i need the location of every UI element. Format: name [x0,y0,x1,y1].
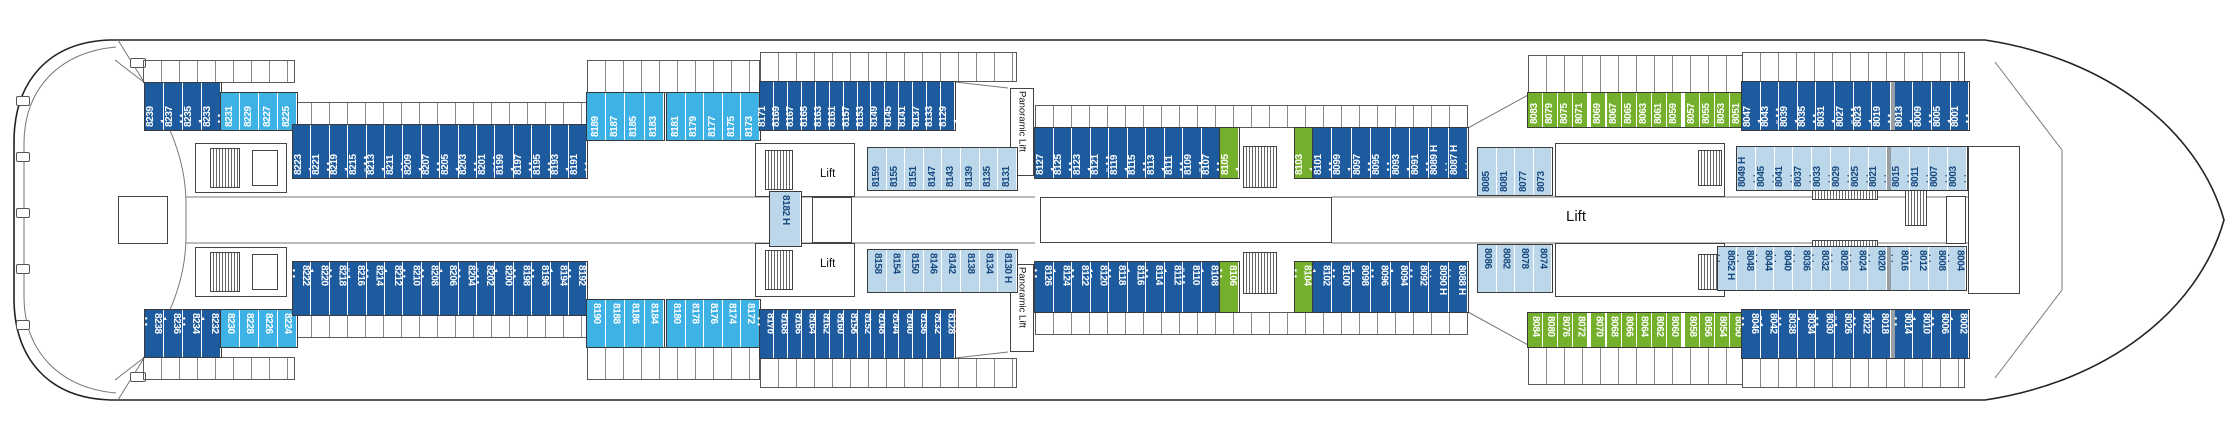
balcony-band [587,60,760,93]
cabin-number: 8058 [1687,316,1698,337]
cabin-8110[interactable]: 8110I●● [1183,262,1201,312]
cabin-8233[interactable]: 8233●● [202,83,220,130]
cabin-8154[interactable]: 8154 [887,250,905,292]
cabin-8025[interactable]: 8025▪▪ [1850,147,1868,190]
cabin-8097[interactable]: 8097●● [1352,128,1370,178]
cabin-number: 8049 H [1737,157,1748,187]
cabin-number: 8191 [569,154,580,175]
cabin-number: 8181 [670,116,681,137]
cabin-8081[interactable]: 8081 [1497,148,1515,195]
cabin-8069[interactable]: 8069 [1591,93,1605,127]
cabin-8204[interactable]: 8204●● [459,262,476,315]
cabin-8099[interactable]: 8099▲ [1332,128,1350,178]
cabin-8200[interactable]: 8200▲ [495,262,512,315]
cabin-8207[interactable]: 8207●● [422,125,439,178]
cabin-number: 8190 [591,303,602,324]
cabin-feature-icon: ▲ [383,268,389,315]
cabin-8202[interactable]: 8202I●● [477,262,494,315]
cabin-8028[interactable]: 8028▪▪ [1831,247,1849,290]
cabin-8178[interactable]: 8178 [686,300,704,347]
cabin-8096[interactable]: 8096●● [1371,262,1389,312]
cabin-8223[interactable]: 8223▲ [293,125,310,178]
cabin-8159[interactable]: 8159 [868,148,886,190]
cabin-number: 8169 [771,106,782,127]
cabin-8108[interactable]: 8108▲ [1202,262,1220,312]
cabin-8215[interactable]: 8215I●● [348,125,365,178]
cabin-8197[interactable]: 8197●● [514,125,531,178]
cabin-8193[interactable]: 8193▲ [551,125,568,178]
cabin-8103[interactable]: 8103▲ [1295,128,1312,178]
cabin-8062[interactable]: 8062 [1652,313,1666,347]
cabin-8226[interactable]: 8226 [259,310,277,347]
cabin-8119[interactable]: 8119▲ [1109,128,1127,178]
cabin-number: 8186 [629,303,640,324]
cabin-feature-icon: ●● [456,268,462,315]
cabin-8027[interactable]: 8027I●● [1835,82,1853,130]
deck-plan: Lift Lift Lift Panoramic Lift Panoramic … [0,0,2230,440]
cabin-number: 8004 [1955,250,1966,271]
cabin-8180[interactable]: 8180 [667,300,685,347]
cabin-8085[interactable]: 8085 [1478,148,1496,195]
cabin-8205[interactable]: 8205▲ [440,125,457,178]
cabin-number: 8070 [1593,316,1604,337]
cabin-8201[interactable]: 8201I●● [477,125,494,178]
cabin-8109[interactable]: 8109I▲ [1183,128,1201,178]
cabin-8009[interactable]: 8009●● [1913,82,1931,130]
cabin-8118[interactable]: 8118●● [1109,262,1127,312]
cabin-8227[interactable]: 8227 [259,93,277,130]
cabin-8054[interactable]: 8054 [1715,313,1729,347]
cabin-8088[interactable]: 8088 H▪▪ [1449,262,1467,312]
cabin-feature-icon: ●● [419,268,425,315]
cabin-8074[interactable]: 8074 [1534,245,1552,292]
cabin-8064[interactable]: 8064 [1637,313,1651,347]
cabin-8235[interactable]: 8235▲ [183,83,201,130]
cabin-8024[interactable]: 8024▪▪ [1850,247,1868,290]
cabin-feature-icon: ●● [1107,268,1113,312]
cabin-8228[interactable]: 8228 [240,310,258,347]
cabin-8042[interactable]: 8042I▲ [1761,310,1779,358]
cabin-feature-icon: ●● [530,268,536,315]
cabin-8073[interactable]: 8073 [1534,148,1552,195]
cabin-number: 8230 [225,313,236,334]
cabin-8034[interactable]: 8034▲ [1798,310,1816,358]
cabin-8058[interactable]: 8058 [1685,313,1699,347]
cabin-8192[interactable]: 8192●● [569,262,586,315]
cabin-8041[interactable]: 8041▪▪ [1775,147,1793,190]
cabin-8146[interactable]: 8146 [924,250,942,292]
cabin-number: 8128 [946,313,957,334]
stairs-icon [765,150,793,190]
cabin-8239[interactable]: 8239▲ [145,83,163,130]
cabin-8016[interactable]: 8016▪▪ [1891,247,1909,290]
cabin-number: 8145 [883,106,894,127]
cabin-number: 8131 [1001,166,1012,187]
cabin-8029[interactable]: 8029▪▪ [1831,147,1849,190]
cabin-8236[interactable]: 8236▲ [164,310,182,357]
cabin-number: 8119 [1109,155,1120,175]
cabin-8139[interactable]: 8139 [961,148,979,190]
cabin-8037[interactable]: 8037▪▪ [1793,147,1811,190]
cabin-8020[interactable]: 8020▪▪ [1868,247,1886,290]
cabin-number: 8087 H [1449,145,1460,175]
cabin-8012[interactable]: 8012▪▪ [1910,247,1928,290]
lift-shaft [252,150,278,186]
cabin-8053[interactable]: 8053 [1715,93,1729,127]
cabin-8013[interactable]: 8013▲ [1895,82,1913,130]
cabin-feature-icon: ▪▪ [1908,253,1914,290]
cabin-8092[interactable]: 8092●● [1410,262,1428,312]
cabin-8106[interactable]: 8106●● [1220,262,1238,312]
cabin-8026[interactable]: 8026I▲ [1835,310,1853,358]
balcony-band [293,102,587,125]
cabin-8105[interactable]: 8105▲ [1220,128,1238,178]
cabin-8115[interactable]: 8115●● [1128,128,1146,178]
cabin-8112[interactable]: 8112▲ [1165,262,1183,312]
cabin-8090[interactable]: 8090 H▪▪ [1429,262,1447,312]
cabin-number: 8161 [827,106,838,127]
cabin-8210[interactable]: 8210●● [403,262,420,315]
cabin-8196[interactable]: 8196●● [532,262,549,315]
cabin-8142[interactable]: 8142 [942,250,960,292]
cabin-8063[interactable]: 8063 [1637,93,1651,127]
cabin-8126[interactable]: 8126●● [1035,262,1053,312]
cabin-number: 8159 [871,166,882,187]
cabin-8082[interactable]: 8082 [1497,245,1515,292]
cabin-8070[interactable]: 8070 [1591,313,1605,347]
cabin-8230[interactable]: 8230 [221,310,239,347]
cabin-8094[interactable]: 8094▲ [1391,262,1409,312]
cabin-number: 8095 [1371,154,1382,175]
cabin-8206[interactable]: 8206▲ [440,262,457,315]
cabin-8086[interactable]: 8086 [1478,245,1496,292]
cabin-8179[interactable]: 8179 [686,93,704,140]
cabin-8059[interactable]: 8059 [1667,93,1681,127]
cabin-8093[interactable]: 8093▲ [1391,128,1409,178]
cabin-8186[interactable]: 8186 [625,300,643,347]
cabin-number: 8064 [1639,316,1650,337]
cabin-feature-icon: ▲ [1234,128,1240,172]
cabin-feature-icon: ▲ [895,316,901,358]
cabin-8123[interactable]: 8123▲ [1072,128,1090,178]
cabin-8080[interactable]: 8080 [1543,313,1557,347]
cabin-8177[interactable]: 8177 [704,93,722,140]
cabin-number: 8097 [1352,154,1363,175]
cabin-8100[interactable]: 8100●● [1332,262,1350,312]
cabin-feature-icon: ▲ [1199,268,1205,312]
cabin-8083[interactable]: 8083 [1528,93,1542,127]
cabin-8195[interactable]: 8195●● [532,125,549,178]
cabin-8147[interactable]: 8147 [924,148,942,190]
cabin-8014[interactable]: 8014●● [1895,310,1913,358]
cabin-number: 8137 [911,106,922,127]
cabin-number: 8002 [1958,313,1969,334]
cabin-8040[interactable]: 8040▪▪ [1774,247,1792,290]
cabin-number: 8146 [928,253,939,274]
cabin-number: 8007 [1929,166,1940,187]
cabin-8055[interactable]: 8055 [1700,93,1714,127]
cabin-8181[interactable]: 8181 [667,93,685,140]
cabin-feature-icon: ●● [1814,316,1820,358]
cabin-8023[interactable]: 8023▲ [1854,82,1872,130]
cabin-number: 8055 [1701,103,1712,124]
cabin-8185[interactable]: 8185 [625,93,643,140]
cabin-8135[interactable]: 8135 [980,148,998,190]
cabin-8194[interactable]: 8194▲ [551,262,568,315]
cabin-number: 8205 [440,154,451,175]
cabin-8075[interactable]: 8075 [1558,93,1572,127]
cabin-number: 8089 H [1429,145,1440,175]
cabin-8121[interactable]: 8121I●● [1091,128,1109,178]
cabin-8218[interactable]: 8218●● [330,262,347,315]
cabin-number: 8215 [348,154,359,175]
cabin-8078[interactable]: 8078 [1515,245,1533,292]
cabin-8007[interactable]: 8007▪▪ [1929,147,1947,190]
cabin-8019[interactable]: 8019●● [1872,82,1890,130]
cabin-8222[interactable]: 8222●● [293,262,310,315]
cabin-8143[interactable]: 8143 [942,148,960,190]
cabin-number: 8047 [1742,106,1753,127]
cabin-8155[interactable]: 8155 [887,148,905,190]
balcony-band [143,357,295,380]
cabin-number: 8081 [1499,171,1510,192]
cabin-feature-icon: ●● [364,268,370,315]
cabin-8079[interactable]: 8079 [1543,93,1557,127]
cabin-8091[interactable]: 8091●● [1410,128,1428,178]
cabin-feature-icon: ▲ [200,316,206,357]
cabin-8184[interactable]: 8184 [645,300,663,347]
cabin-feature-icon: I▲ [346,268,352,315]
cabin-8114[interactable]: 8114●● [1146,262,1164,312]
cabin-8134[interactable]: 8134 [980,250,998,292]
cabin-8056[interactable]: 8056 [1700,313,1714,347]
cabin-8038[interactable]: 8038●● [1779,310,1797,358]
cabin-feature-icon: ▲ [438,268,444,315]
cabin-8238[interactable]: 8238●● [145,310,163,357]
cabin-feature-icon: ▲ [1051,268,1057,312]
cabin-8104[interactable]: 8104●● [1295,262,1312,312]
cabin-8018[interactable]: 8018▲ [1872,310,1890,358]
cabin-8122[interactable]: 8122●● [1072,262,1090,312]
cabin-8127[interactable]: 8127▲ [1035,128,1053,178]
cabin-8187[interactable]: 8187 [606,93,624,140]
cabin-feature-icon: ●● [1930,316,1936,358]
cabin-8232[interactable]: 8232▲ [202,310,220,357]
cabin-number: 8135 [982,166,993,187]
cabin-8077[interactable]: 8077 [1515,148,1533,195]
cabin-8131[interactable]: 8131 [998,148,1016,190]
cabin-8189[interactable]: 8189 [587,93,605,140]
cabin-8068[interactable]: 8068 [1607,313,1621,347]
cabin-number: 8239 [145,106,156,127]
cabin-number: 8073 [1536,171,1547,192]
balcony-band [143,60,295,83]
cabin-8089[interactable]: 8089 H▪▪ [1429,128,1447,178]
cabin-feature-icon: ▲ [162,316,168,357]
cabin-number: 8134 [983,253,994,274]
cabin-number: 8080 [1545,316,1556,337]
cabin-8183[interactable]: 8183 [645,93,663,140]
cabin-8188[interactable]: 8188 [606,300,624,347]
cabin-number: 8163 [813,106,824,127]
cabin-8125[interactable]: 8125●● [1054,128,1072,178]
cabin-8213[interactable]: 8213▲ [367,125,384,178]
cabin-number: 8071 [1574,103,1585,124]
cabin-8120[interactable]: 8120▲I [1091,262,1109,312]
stern-window [16,152,30,162]
cabin-8043[interactable]: 8043I●● [1761,82,1779,130]
cabin-8101[interactable]: 8101●● [1313,128,1331,178]
cabin-8036[interactable]: 8036▪▪ [1793,247,1811,290]
cabin-8220[interactable]: 8220▲ [311,262,328,315]
cabin-8111[interactable]: 8111●● [1165,128,1183,178]
cabin-8129[interactable]: 8129▲ [941,82,954,130]
cabin-8182[interactable]: 8182 H [770,192,800,246]
cabin-8234[interactable]: 8234●● [183,310,201,357]
cabin-8116[interactable]: 8116▲ [1128,262,1146,312]
cabin-8212[interactable]: 8212▲ [385,262,402,315]
cabin-number: 8025 [1850,166,1861,187]
cabin-feature-icon: ▪▪ [1716,253,1722,290]
cabin-8001[interactable]: 8001●● [1951,82,1969,130]
cabin-8030[interactable]: 8030●● [1816,310,1834,358]
cabin-8208[interactable]: 8208●● [422,262,439,315]
cabin-8214[interactable]: 8214●● [367,262,384,315]
cabin-8011[interactable]: 8011▪▪ [1910,147,1928,190]
cabin-8015[interactable]: 8015▪▪ [1891,147,1909,190]
cabin-feature-icon: ▪▪ [1945,253,1951,290]
cabin-8006[interactable]: 8006●● [1932,310,1950,358]
cabin-number: 8185 [628,116,639,137]
cabin-8150[interactable]: 8150 [905,250,923,292]
cabin-8031[interactable]: 8031▲ [1816,82,1834,130]
cabin-8107[interactable]: 8107●● [1202,128,1220,178]
stern-window [16,208,30,218]
cabin-8176[interactable]: 8176 [704,300,722,347]
cabin-feature-icon: I▲ [1833,316,1839,358]
cabin-8033[interactable]: 8033▪▪ [1812,147,1830,190]
cabin-8138[interactable]: 8138 [961,250,979,292]
cabin-number: 8029 [1831,166,1842,187]
cabin-8035[interactable]: 8035●● [1798,82,1816,130]
cabin-8124[interactable]: 8124▲ [1054,262,1072,312]
cabin-8128[interactable]: 8128▲ [941,310,954,358]
cabin-8151[interactable]: 8151 [905,148,923,190]
cabin-8072[interactable]: 8072 [1573,313,1587,347]
cabin-8095[interactable]: 8095●● [1371,128,1389,178]
balcony-band [760,52,1017,82]
cabin-number: 8231 [224,106,235,127]
cabin-8045[interactable]: 8045▪▪ [1756,147,1774,190]
cabin-8008[interactable]: 8008▪▪ [1929,247,1947,290]
cabin-number: 8207 [421,154,432,175]
cabin-feature-icon: ●● [1964,82,1970,124]
cabin-8044[interactable]: 8044▪▪ [1756,247,1774,290]
cabin-8046[interactable]: 8046●● [1742,310,1760,358]
cabin-8002[interactable]: 8002▲ [1951,310,1969,358]
cabin-8113[interactable]: 8113▲ [1146,128,1164,178]
cabin-8237[interactable]: 8237●● [164,83,182,130]
cabin-feature-icon: ●● [1070,268,1076,312]
cabin-feature-icon: ▪▪ [1427,268,1433,312]
cabin-8190[interactable]: 8190 [587,300,605,347]
cabin-8076[interactable]: 8076 [1558,313,1572,347]
cabin-number: 8005 [1932,106,1943,127]
cabin-number: 8125 [1053,154,1064,175]
cabin-number: 8076 [1560,316,1571,337]
cabin-8174[interactable]: 8174 [723,300,741,347]
cabin-8231[interactable]: 8231 [221,93,239,130]
cabin-number: 8171 [757,106,768,127]
cabin-number: 8018 [1879,313,1890,334]
cabin-8084[interactable]: 8084 [1528,313,1542,347]
balcony-band [760,358,1017,388]
cabin-8010[interactable]: 8010▲ [1913,310,1931,358]
cabin-feature-icon: ▪▪ [1791,253,1797,290]
cabin-8032[interactable]: 8032▪▪ [1812,247,1830,290]
cabin-8216[interactable]: 8216I▲ [348,262,365,315]
cabin-number: 8023 [1853,106,1864,127]
cabin-8211[interactable]: 8211●● [385,125,402,178]
cabin-8047[interactable]: 8047▲ [1742,82,1760,130]
cabin-8191[interactable]: 8191●● [569,125,586,178]
cabin-8229[interactable]: 8229 [240,93,258,130]
cabin-8057[interactable]: 8057 [1685,93,1699,127]
cabin-8021[interactable]: 8021▪▪ [1869,147,1887,190]
stern-window [16,96,30,106]
cabin-feature-icon: ▪▪ [1927,253,1933,290]
cabin-8060[interactable]: 8060 [1667,313,1681,347]
cabin-8098[interactable]: 8098▲ [1352,262,1370,312]
cabin-feature-icon: ▲ [1125,268,1131,312]
cabin-feature-icon: ●● [1408,268,1414,312]
cabin-number: 8221 [311,154,322,175]
cabin-number: 8237 [164,106,175,127]
cabin-8065[interactable]: 8065 [1622,93,1636,127]
cabin-8158[interactable]: 8158 [868,250,886,292]
cabin-8198[interactable]: 8198●● [514,262,531,315]
cabin-8005[interactable]: 8005▲ [1932,82,1950,130]
cabin-number: 8060 [1669,316,1680,337]
cabin-number: 8077 [1518,171,1529,192]
balcony-band [587,347,760,380]
cabin-8049[interactable]: 8049 H▪▪ [1737,147,1755,190]
cabin-8087[interactable]: 8087 H▪▪ [1449,128,1467,178]
cabin-number: 8151 [908,166,919,187]
cabin-8203[interactable]: 8203●● [459,125,476,178]
cabin-number: 8182 H [780,195,791,225]
cabin-number: 8192 [576,265,587,286]
cabin-8003[interactable]: 8003▪▪ [1948,147,1966,190]
cabin-8066[interactable]: 8066 [1622,313,1636,347]
lift-label-bottom: Lift [820,258,835,270]
cabin-8175[interactable]: 8175 [723,93,741,140]
cabin-8052[interactable]: 8052 H▪▪ [1718,247,1736,290]
cabin-8004[interactable]: 8004▪▪ [1948,247,1966,290]
cabin-8061[interactable]: 8061 [1652,93,1666,127]
cabin-8048[interactable]: 8048▪▪ [1737,247,1755,290]
cabin-8071[interactable]: 8071 [1573,93,1587,127]
cabin-8022[interactable]: 8022●● [1854,310,1872,358]
cabin-8067[interactable]: 8067 [1607,93,1621,127]
cabin-feature-icon: I●● [1181,268,1187,312]
cabin-number: 8157 [841,106,852,127]
cabin-number: 8183 [648,116,659,137]
cabin-8130[interactable]: 8130 H [998,250,1016,292]
cabin-8219[interactable]: 8219▲ [330,125,347,178]
cabin-8102[interactable]: 8102▲ [1313,262,1331,312]
cabin-number: 8019 [1872,106,1883,127]
